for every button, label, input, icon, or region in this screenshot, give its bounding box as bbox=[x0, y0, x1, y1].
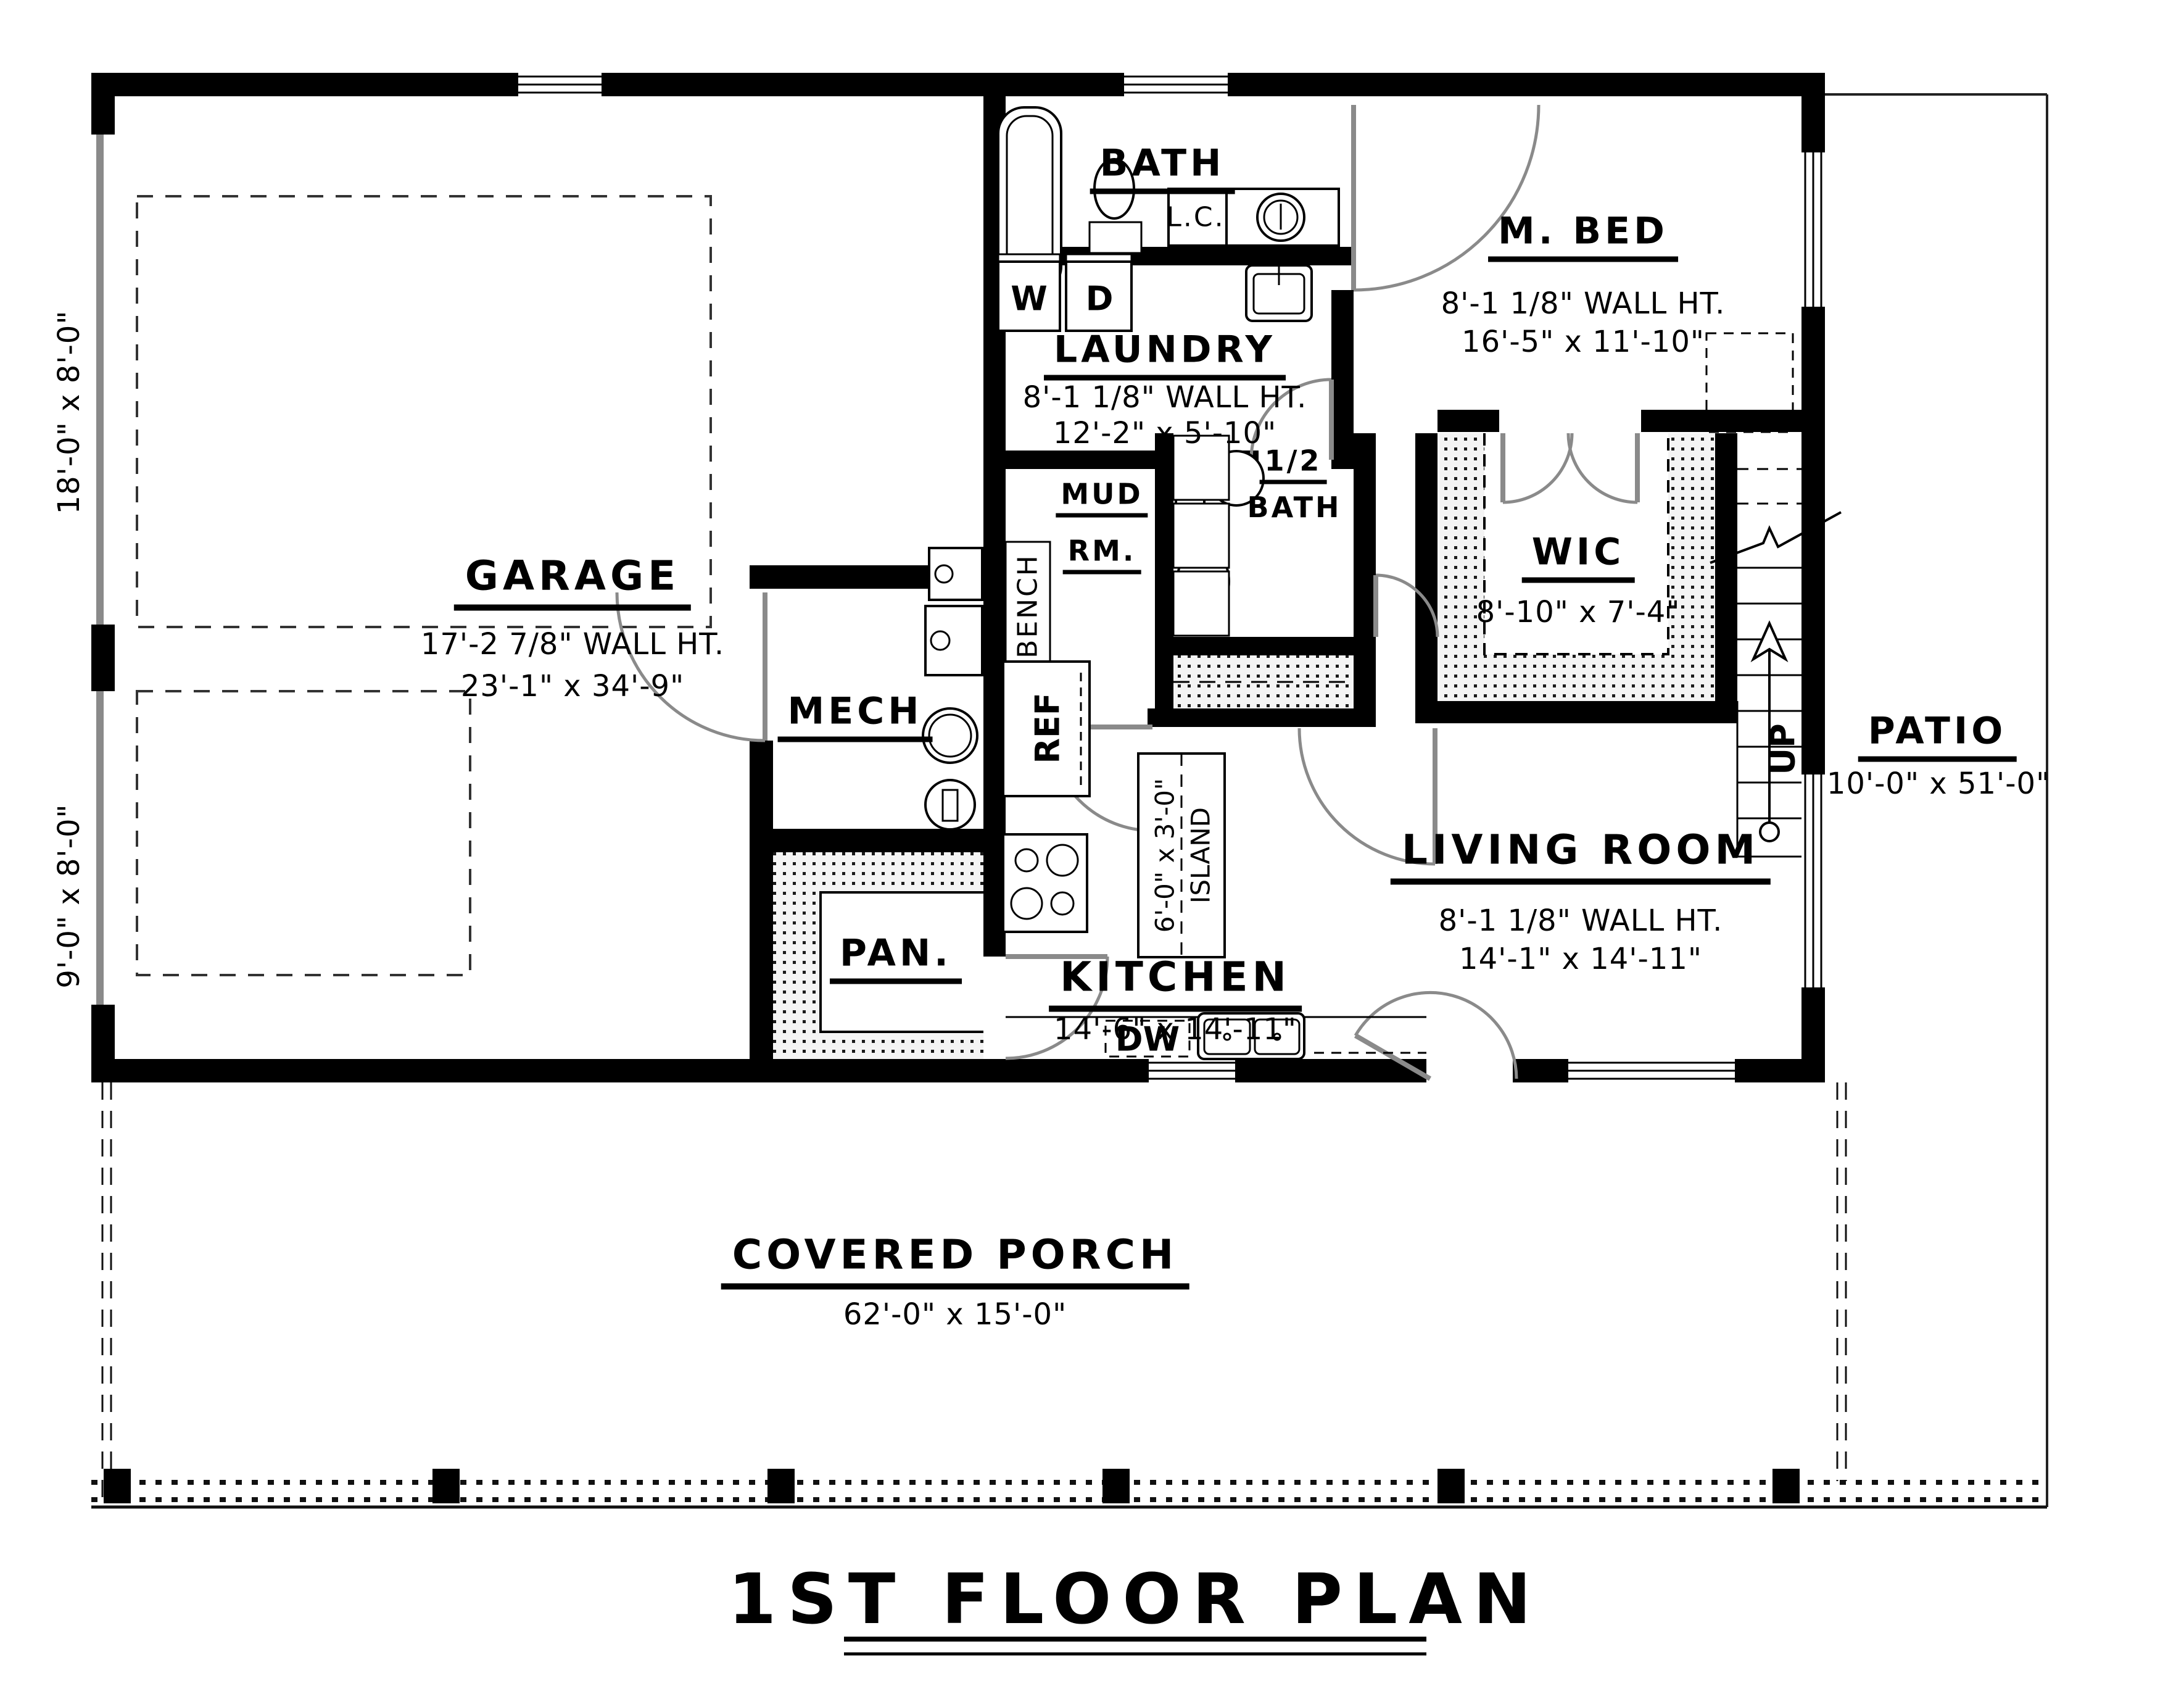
linen-cabinet-label: L.C. bbox=[1166, 202, 1225, 233]
garage-door-large-label: 18'-0" x 8'-0" bbox=[52, 310, 86, 515]
room-label-mud-line1: MUD bbox=[1056, 478, 1148, 518]
dishwasher-label: DW bbox=[1115, 1020, 1180, 1059]
room-dims-garage: 23'-1" x 34'-9" bbox=[461, 669, 684, 704]
garage-door-panels bbox=[96, 135, 104, 1005]
laundry-sink-icon bbox=[1135, 258, 1338, 321]
dryer-label: D bbox=[1086, 280, 1114, 318]
room-wallht-garage: 17'-2 7/8" WALL HT. bbox=[421, 627, 724, 662]
island-label: ISLAND bbox=[1186, 807, 1216, 903]
title-underline bbox=[844, 1639, 1426, 1654]
room-dims-living: 14'-1" x 14'-11" bbox=[1459, 942, 1702, 976]
room-label-mech: MECH bbox=[778, 690, 933, 742]
room-label-halfbath-line1: 1/2 bbox=[1260, 444, 1327, 484]
floor-plan-page: BATH M. BED 8'-1 1/8" WALL HT. 16'-5" x … bbox=[0, 0, 2184, 1686]
room-dims-wic: 8'-10" x 7'-4" bbox=[1476, 595, 1681, 629]
room-label-living: LIVING ROOM bbox=[1391, 826, 1771, 885]
porch-posts bbox=[104, 1469, 1800, 1503]
bench-label: BENCH bbox=[1012, 554, 1044, 658]
island-dims-label: 6'-0" x 3'-0" bbox=[1150, 778, 1180, 932]
room-label-laundry: LAUNDRY bbox=[1044, 328, 1286, 381]
room-label-mud-line2: RM. bbox=[1063, 534, 1141, 575]
mech-equipment-icons bbox=[923, 548, 982, 829]
room-wallht-living: 8'-1 1/8" WALL HT. bbox=[1439, 903, 1723, 938]
washer-label: W bbox=[1011, 280, 1048, 318]
mudroom-lockers bbox=[1173, 436, 1229, 636]
room-label-pantry: PAN. bbox=[830, 932, 962, 984]
room-label-patio: PATIO bbox=[1858, 710, 2017, 762]
room-label-halfbath-line2: BATH bbox=[1243, 491, 1347, 524]
room-dims-laundry: 12'-2" x 5'-10" bbox=[1053, 416, 1276, 451]
hall-closet-hatch bbox=[1173, 655, 1354, 708]
room-wallht-laundry: 8'-1 1/8" WALL HT. bbox=[1023, 380, 1307, 415]
room-label-mbed: M. BED bbox=[1488, 210, 1678, 262]
room-label-wic: WIC bbox=[1522, 531, 1635, 583]
room-label-kitchen: KITCHEN bbox=[1049, 953, 1302, 1012]
room-label-garage: GARAGE bbox=[454, 552, 691, 611]
floor-plan-drawing bbox=[0, 0, 2184, 1686]
room-dims-mbed: 16'-5" x 11'-10" bbox=[1462, 325, 1705, 359]
room-wallht-mbed: 8'-1 1/8" WALL HT. bbox=[1441, 286, 1726, 321]
room-dims-patio: 10'-0" x 51'-0" bbox=[1827, 766, 2050, 801]
room-dims-porch: 62'-0" x 15'-0" bbox=[843, 1297, 1067, 1332]
stove-icon bbox=[1003, 834, 1087, 932]
porch-outline bbox=[91, 1082, 2047, 1507]
garage-door-small-label: 9'-0" x 8'-0" bbox=[52, 804, 86, 988]
room-label-bath: BATH bbox=[1090, 142, 1235, 194]
stairs-up-label: UP bbox=[1764, 723, 1803, 774]
room-label-porch: COVERED PORCH bbox=[721, 1231, 1189, 1290]
sheet-title: 1ST FLOOR PLAN bbox=[728, 1559, 1542, 1640]
fridge-label: REF bbox=[1028, 692, 1067, 763]
